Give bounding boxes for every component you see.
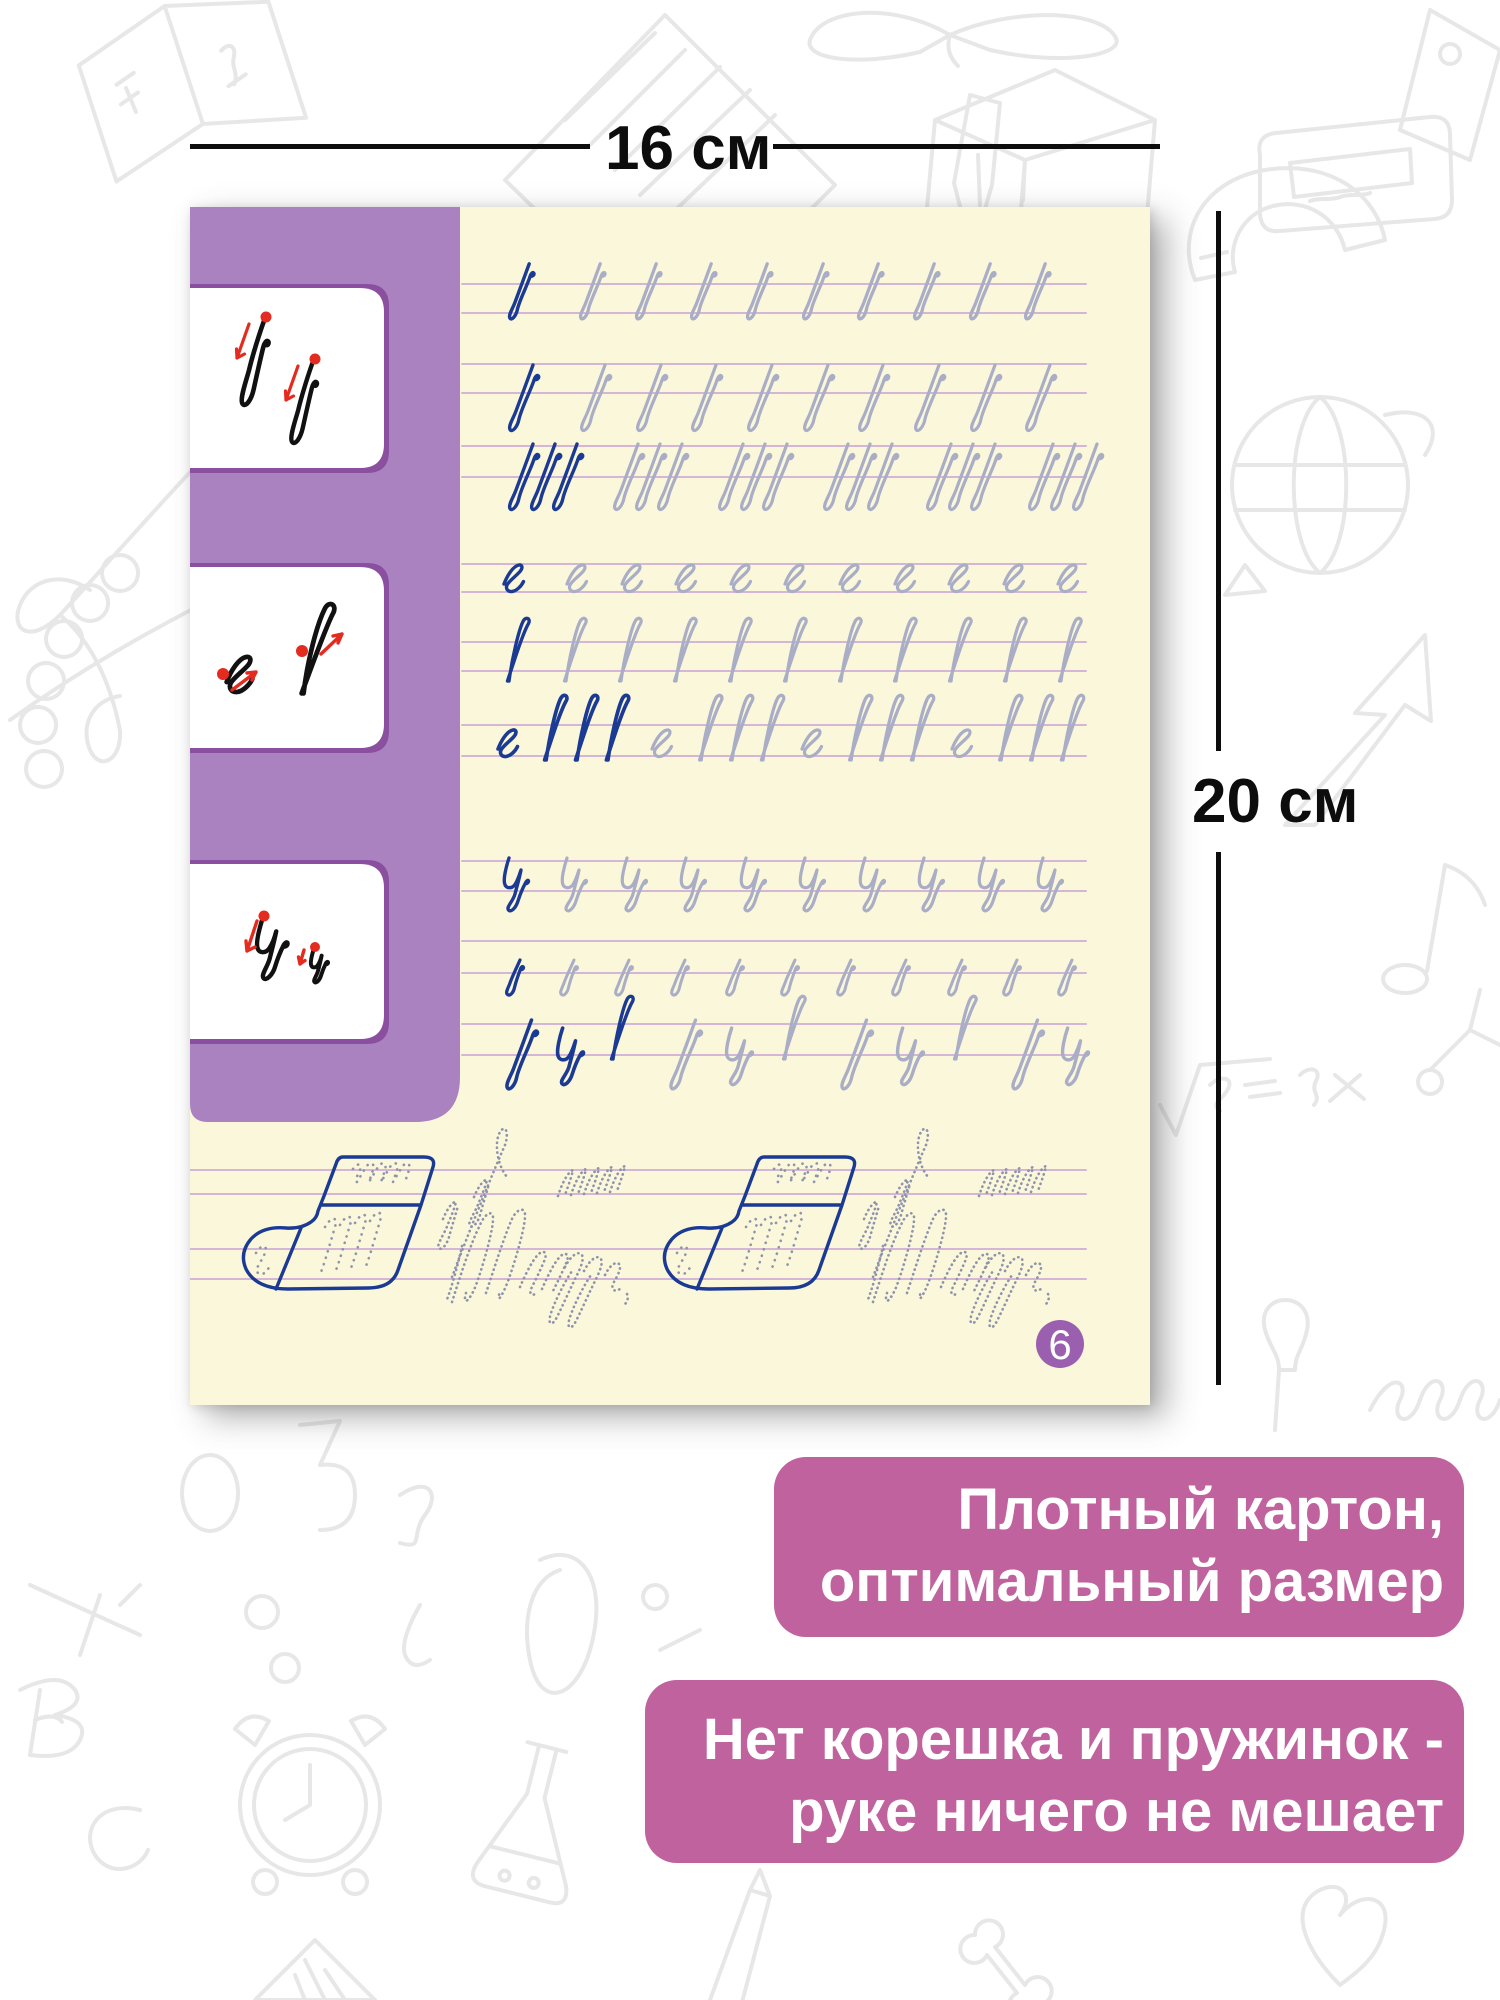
svg-text:6: 6 bbox=[1048, 1321, 1071, 1368]
